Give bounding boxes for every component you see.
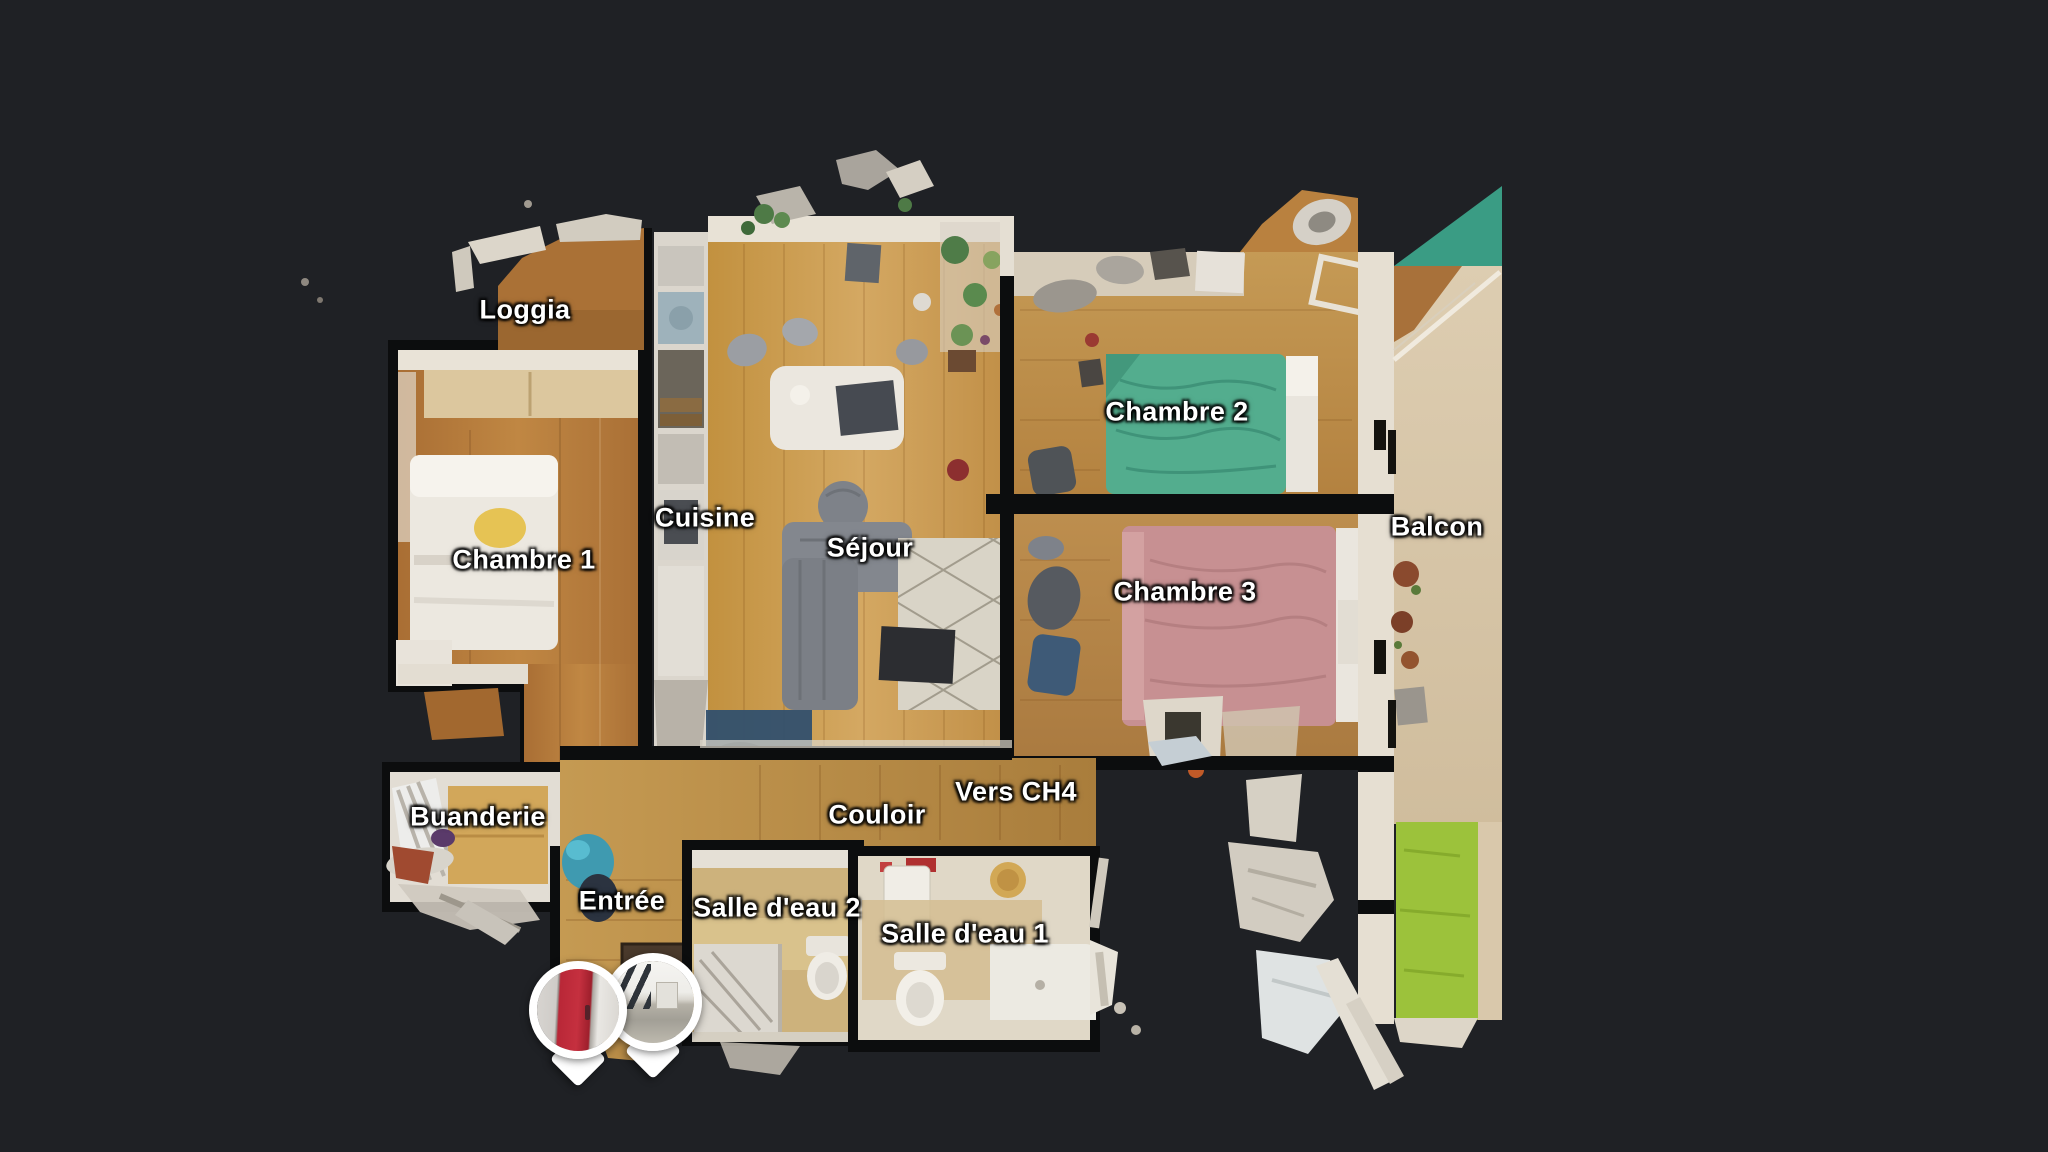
floorplan-view: Loggia Chambre 1 Cuisine Séjour Chambre … <box>0 0 2048 1152</box>
door-knob <box>585 1005 590 1020</box>
room-label-couloir: Couloir <box>828 800 925 831</box>
room-label-chambre-3: Chambre 3 <box>1113 577 1256 608</box>
pin-photo-entrance-door <box>529 961 627 1059</box>
exterior-building <box>656 982 678 1009</box>
room-label-salle-deau-1: Salle d'eau 1 <box>881 919 1049 950</box>
room-label-chambre-1: Chambre 1 <box>452 545 595 576</box>
room-label-chambre-2: Chambre 2 <box>1105 397 1248 428</box>
room-label-loggia: Loggia <box>480 295 571 326</box>
room-labels-layer: Loggia Chambre 1 Cuisine Séjour Chambre … <box>0 0 2048 1152</box>
room-label-buanderie: Buanderie <box>410 802 546 833</box>
room-label-vers-ch4: Vers CH4 <box>955 777 1077 808</box>
room-label-cuisine: Cuisine <box>655 503 755 534</box>
room-label-balcon: Balcon <box>1391 512 1483 543</box>
room-label-sejour: Séjour <box>827 533 913 564</box>
room-label-salle-deau-2: Salle d'eau 2 <box>693 893 861 924</box>
red-door-photo <box>537 969 619 1051</box>
room-label-entree: Entrée <box>579 886 665 917</box>
pin-entrance-door[interactable] <box>529 961 627 1091</box>
